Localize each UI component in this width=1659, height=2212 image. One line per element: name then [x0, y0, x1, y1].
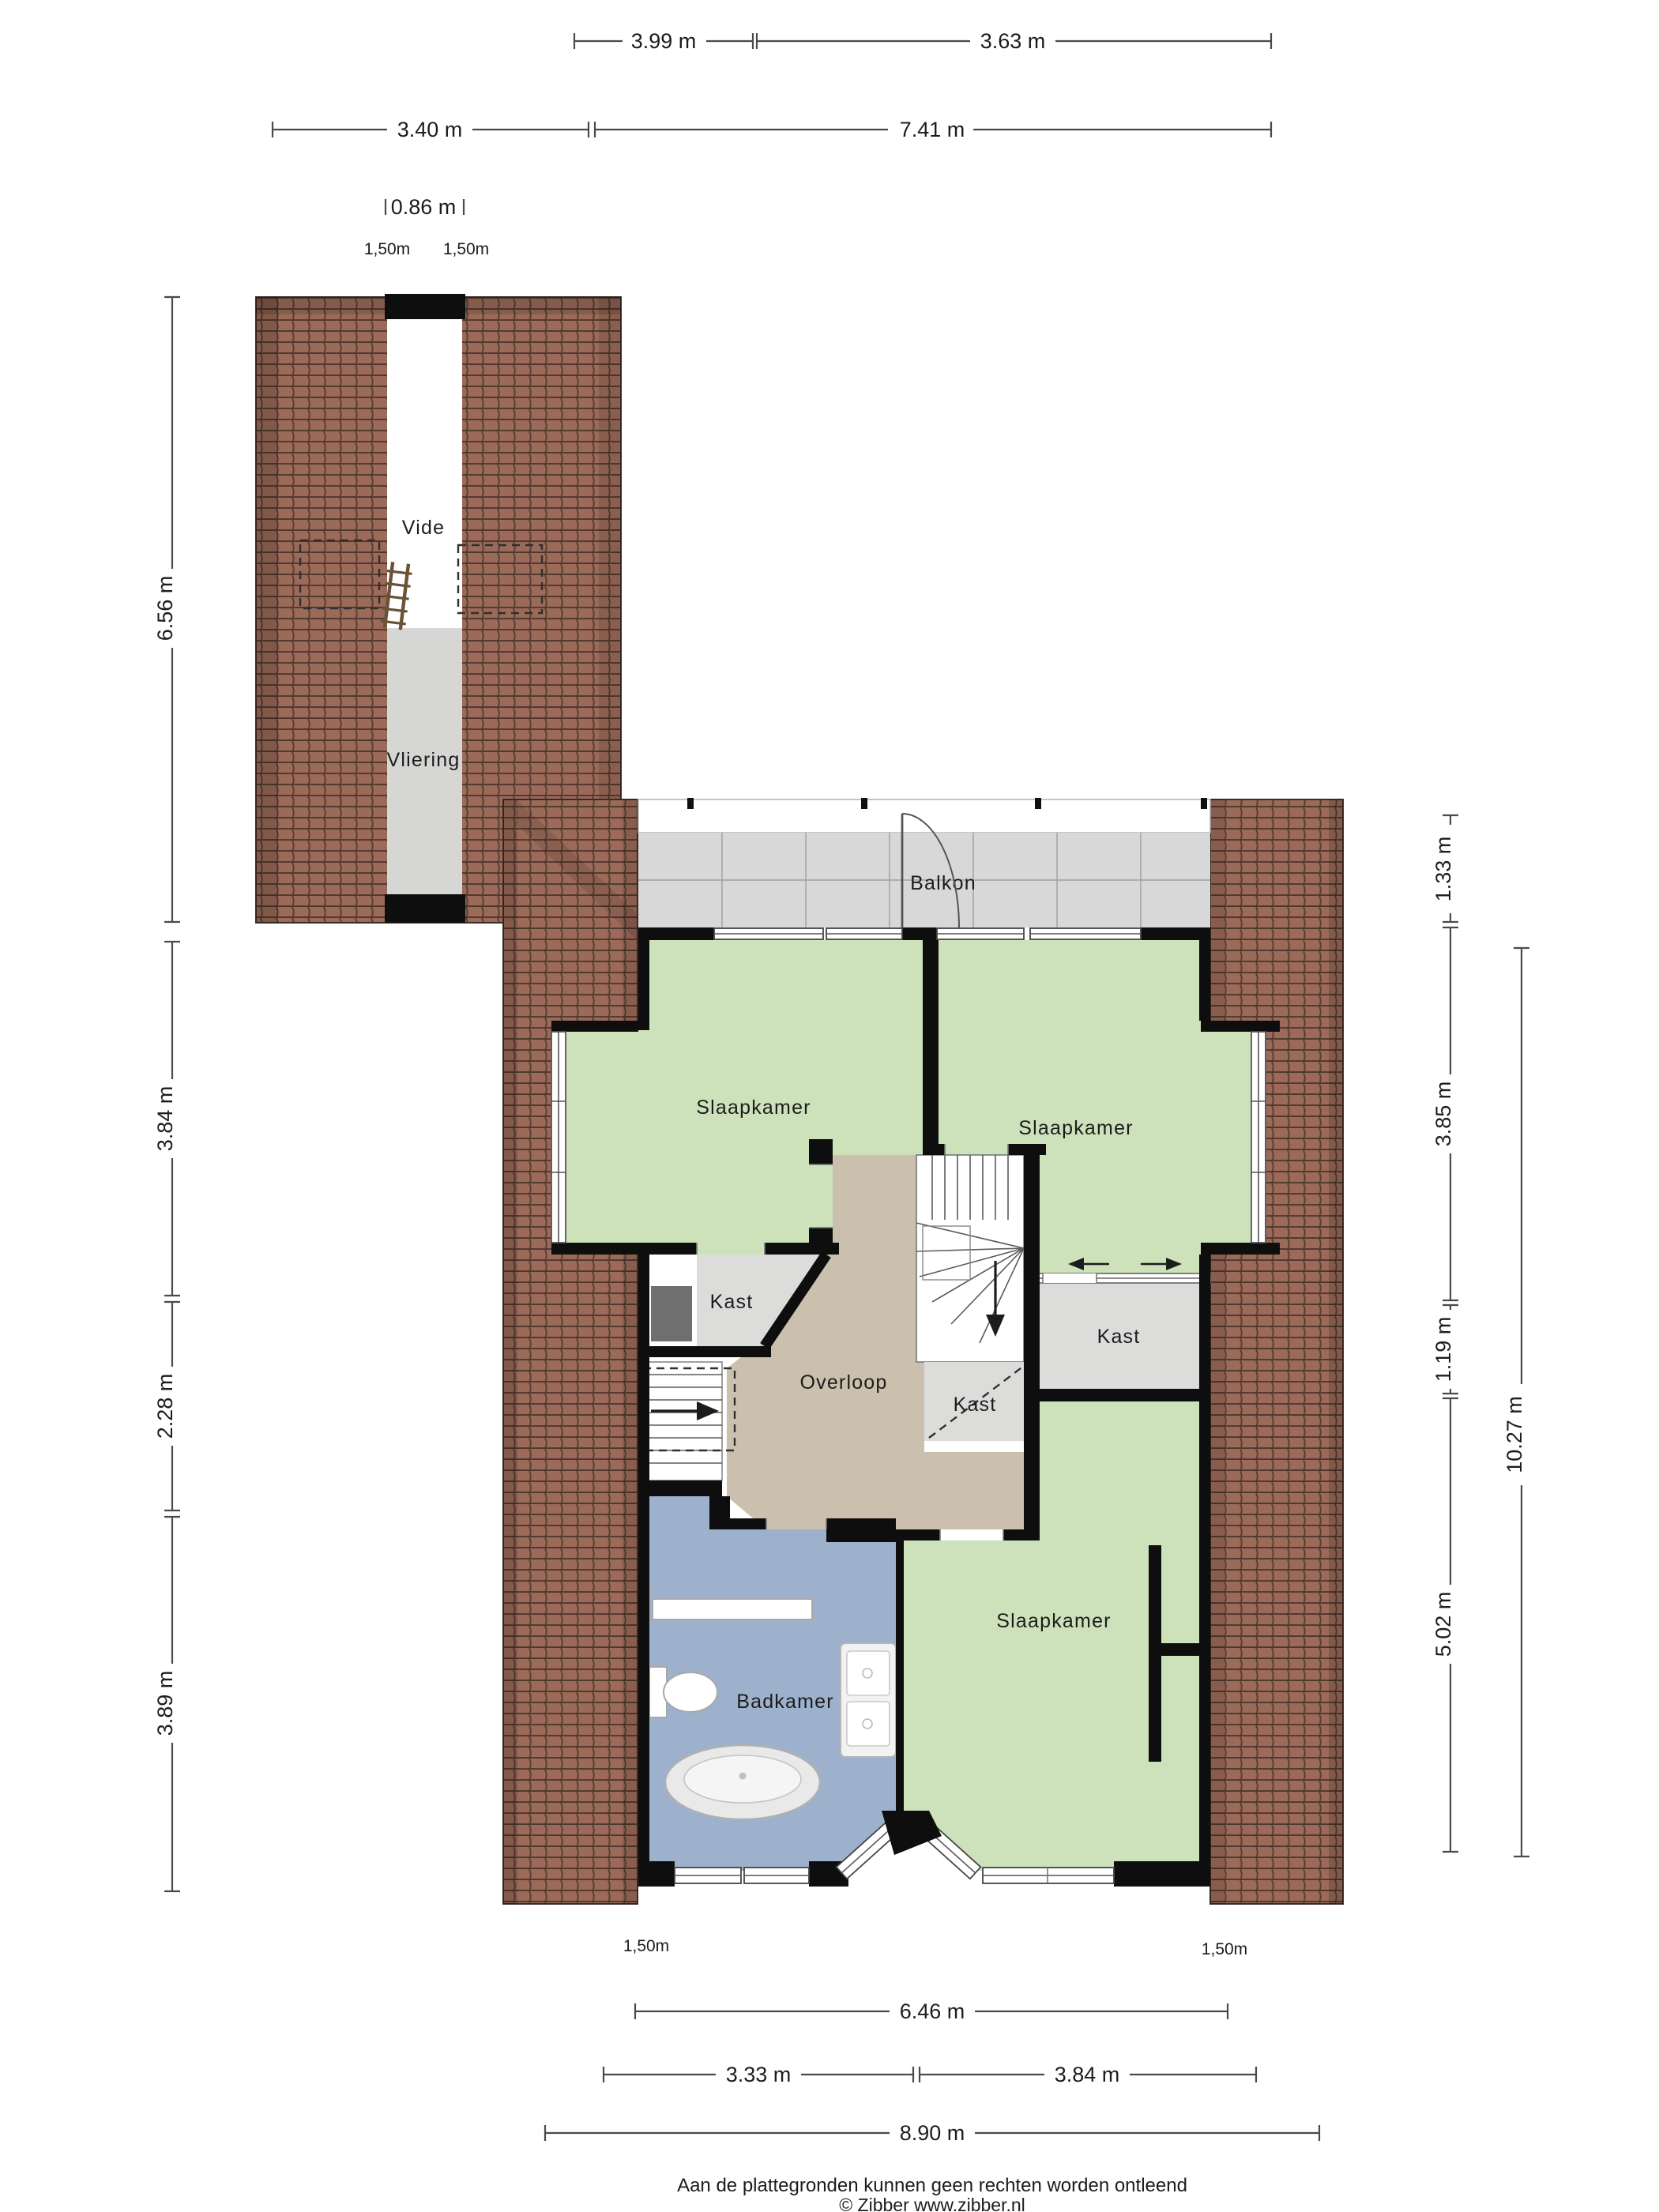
- staircase-main: [916, 1155, 1024, 1362]
- staircase-left: [643, 1362, 735, 1480]
- room-label-balkon: Balkon: [910, 872, 976, 894]
- room-label-vliering: Vliering: [387, 749, 461, 771]
- room-label-badkamer: Badkamer: [736, 1691, 834, 1713]
- footer-disclaimer: Aan de plattegronden kunnen geen rechten…: [677, 2175, 1187, 2196]
- svg-text:3.99 m: 3.99 m: [631, 29, 697, 53]
- svg-text:10.27 m: 10.27 m: [1503, 1396, 1526, 1473]
- room-label-bedroom-tl: Slaapkamer: [696, 1097, 811, 1119]
- svg-text:6.56 m: 6.56 m: [153, 576, 177, 641]
- kast-left-cabinet: [651, 1286, 692, 1341]
- svg-text:1.33 m: 1.33 m: [1431, 837, 1455, 902]
- balkon: Balkon: [638, 798, 1210, 927]
- dim-top-150-right: 1,50m: [443, 240, 489, 258]
- vliering-room: Vliering: [385, 628, 465, 923]
- double-washbasin: [841, 1643, 896, 1757]
- left-roof-strip: [503, 799, 638, 1904]
- room-label-kast-right: Kast: [1097, 1326, 1141, 1348]
- svg-text:0.86 m: 0.86 m: [391, 195, 457, 219]
- room-label-bedroom-tr: Slaapkamer: [1018, 1117, 1133, 1139]
- footer-copyright: © Zibber www.zibber.nl: [839, 2195, 1025, 2212]
- dim-right-119: 1.19 m: [1431, 1305, 1458, 1394]
- bathroom-shelf: [653, 1599, 812, 1619]
- closet-partition-wall: [1149, 1545, 1161, 1762]
- dim-bottom-150-left: 1,50m: [623, 1937, 669, 1955]
- room-label-overloop: Overloop: [799, 1371, 887, 1394]
- dim-top-086: 0.86 m: [386, 195, 464, 219]
- svg-text:8.90 m: 8.90 m: [900, 2121, 965, 2145]
- closet-partition-stub: [1161, 1643, 1204, 1656]
- room-label-bedroom-bottom: Slaapkamer: [996, 1610, 1111, 1632]
- svg-text:2.28 m: 2.28 m: [153, 1374, 177, 1439]
- svg-text:7.41 m: 7.41 m: [900, 118, 965, 141]
- svg-text:3.33 m: 3.33 m: [726, 2063, 792, 2086]
- dim-bottom-150-right: 1,50m: [1202, 1940, 1247, 1958]
- room-label-kast-left: Kast: [710, 1291, 754, 1313]
- room-label-vide: Vide: [402, 517, 445, 539]
- dim-top-150-left: 1,50m: [364, 240, 410, 258]
- kast-under-stairs: Kast: [924, 1362, 1024, 1441]
- svg-text:1.19 m: 1.19 m: [1431, 1317, 1455, 1382]
- svg-text:3.84 m: 3.84 m: [1055, 2063, 1120, 2086]
- svg-text:3.85 m: 3.85 m: [1431, 1082, 1455, 1147]
- svg-text:3.40 m: 3.40 m: [397, 118, 463, 141]
- room-label-kast-under-stairs: Kast: [954, 1394, 997, 1416]
- vide-room: Vide: [385, 294, 465, 628]
- svg-text:3.63 m: 3.63 m: [980, 29, 1046, 53]
- kast-right: Kast: [1030, 1283, 1204, 1389]
- svg-text:3.89 m: 3.89 m: [153, 1671, 177, 1736]
- badkamer: Badkamer: [649, 1496, 896, 1871]
- bathtub: [665, 1745, 820, 1819]
- svg-text:5.02 m: 5.02 m: [1431, 1592, 1455, 1657]
- right-roof-strip: [1210, 799, 1343, 1904]
- svg-text:6.46 m: 6.46 m: [900, 1999, 965, 2023]
- svg-text:3.84 m: 3.84 m: [153, 1086, 177, 1152]
- floor-plan: Vide Vliering Balkon: [0, 0, 1659, 2212]
